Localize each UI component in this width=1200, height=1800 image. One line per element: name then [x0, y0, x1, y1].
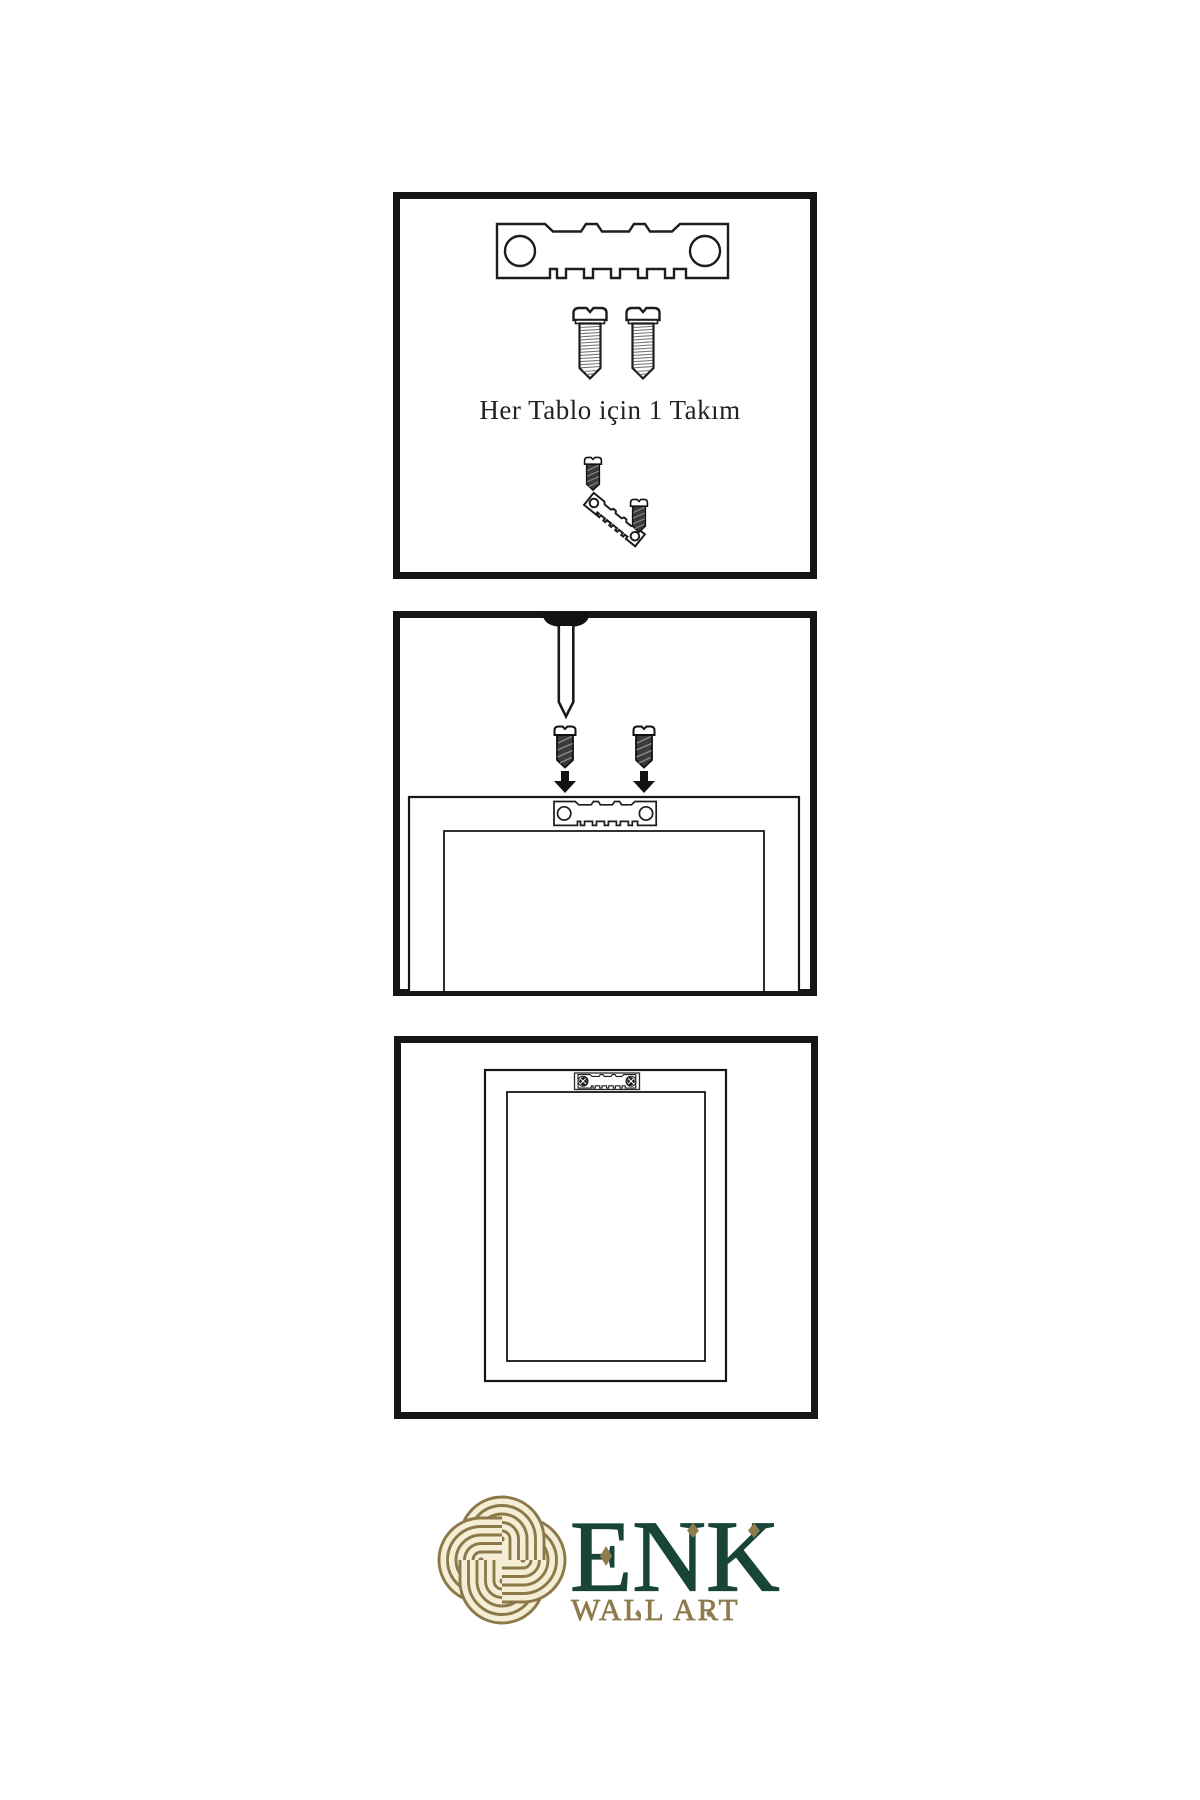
svg-text:WALL ART: WALL ART [571, 1592, 740, 1627]
svg-text:Her Tablo için 1 Takım: Her Tablo için 1 Takım [479, 395, 740, 425]
